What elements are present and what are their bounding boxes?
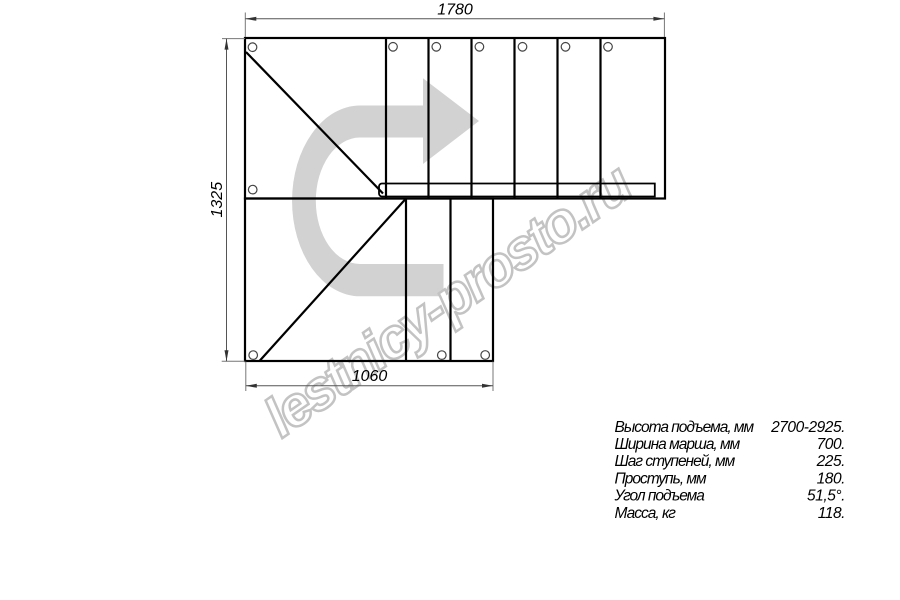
svg-text:2700-2925.: 2700-2925. <box>770 419 845 436</box>
svg-text:Проступь, мм: Проступь, мм <box>615 470 707 487</box>
svg-text:1780: 1780 <box>437 2 473 19</box>
svg-text:225.: 225. <box>816 453 845 470</box>
svg-text:700.: 700. <box>817 436 845 453</box>
svg-text:Угол подъема: Угол подъема <box>614 488 706 505</box>
svg-text:180.: 180. <box>817 470 845 487</box>
svg-text:1060: 1060 <box>352 368 388 385</box>
svg-text:Шаг ступеней, мм: Шаг ступеней, мм <box>615 453 736 470</box>
svg-text:51,5°.: 51,5°. <box>807 488 845 505</box>
svg-text:Ширина марша, мм: Ширина марша, мм <box>615 436 741 453</box>
svg-text:Масса, кг: Масса, кг <box>615 505 677 522</box>
svg-text:118.: 118. <box>818 505 845 522</box>
svg-text:Высота подъема, мм: Высота подъема, мм <box>615 419 755 436</box>
svg-text:1325: 1325 <box>209 182 226 218</box>
